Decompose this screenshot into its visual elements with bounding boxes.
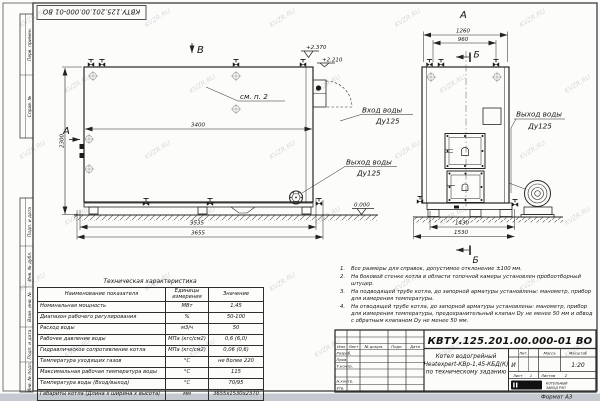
tech-table-row: Рабочее давление водыМПа (кгс/см2)0,6 (6… xyxy=(38,335,264,346)
frame-label-perv-primen: Перв. примен. xyxy=(27,28,33,61)
elevation-marks xyxy=(301,51,374,215)
view-a-letter: А xyxy=(62,126,70,137)
tech-table-row: Температура уходящих газов°Сне более 220 xyxy=(38,357,264,368)
front-outlet-label: Выход воды xyxy=(516,110,562,119)
elevation-0000: 0.000 xyxy=(354,203,370,209)
note-item: 2.На боковой стенке котла в области топо… xyxy=(337,274,594,288)
front-side-valves xyxy=(417,196,518,206)
dim-1430: 1430 xyxy=(455,221,469,227)
section-mark-bottom: Б xyxy=(456,246,479,267)
tech-table-row: Температура воды (Вход/выход)°С70/95 xyxy=(38,379,264,390)
row-utv: Утв. xyxy=(337,386,345,391)
note-item: 4.На отводящей трубе котла, до запорной … xyxy=(337,304,594,325)
row-nkontr: Н.контр. xyxy=(337,379,354,384)
tech-table-body: Номинальная мощностьМВт1,45Диапазон рабо… xyxy=(38,302,264,401)
row-razrab: Разраб. xyxy=(337,351,352,356)
callout-see-note-2: см. п. 2 xyxy=(240,92,268,101)
format-note: Формат А3 xyxy=(541,395,573,401)
front-ground-hatch xyxy=(413,218,563,223)
company-name-line2: ЗАВОД РЭП xyxy=(546,386,566,390)
outlet-leader xyxy=(302,167,397,194)
dim-1260: 1260 xyxy=(456,29,470,35)
lug-symbols xyxy=(84,71,241,174)
col-list: Лист xyxy=(348,344,359,349)
tech-col-name: Наименование показателя xyxy=(38,288,166,302)
dim-960: 960 xyxy=(458,37,469,43)
tech-col-units: Единицы измерения xyxy=(166,288,209,302)
base-anchor xyxy=(454,206,459,209)
scale-value: 1:20 xyxy=(571,362,585,369)
lit-label: Лит. xyxy=(518,351,528,356)
title-block: КВТУ.125.201.00.000-01 ВО Изм Лист № док… xyxy=(335,330,596,392)
col-data: Дата xyxy=(409,344,421,349)
row-tkontr: Т.контр. xyxy=(337,364,353,369)
sheet-value: 1 xyxy=(530,373,532,378)
sheets-value: 2 xyxy=(565,373,568,378)
row-prov: Пров. xyxy=(337,357,348,362)
side-view-dimensions xyxy=(62,67,323,240)
drawing-sheet: KVZR.RUKVZR.RUKVZR.RUKVZR.RUKVZR.RUKVZR.… xyxy=(0,0,600,400)
doc-name-line2: Heatexpert-КВр-1,45-КБД(К) xyxy=(424,362,509,368)
tech-table-row: Гидравлическое сопротивление котлаМПа (к… xyxy=(38,346,264,357)
elevation-2210: +2.210 xyxy=(322,58,343,64)
frame-label-inv-dubl: Инв. № дубл. xyxy=(27,251,33,281)
tech-characteristics: Техническая характеристика Наименование … xyxy=(37,277,263,401)
tech-table: Наименование показателя Единицы измерени… xyxy=(37,287,264,401)
company-name-line1: КОТЕЛЬНЫЙ xyxy=(546,381,568,386)
tech-table-title: Техническая характеристика xyxy=(37,277,263,287)
top-stamp-designation: КВТУ.125.201.00.000-01 ВО xyxy=(42,8,140,16)
tech-table-row: Габариты котла (Длина х ширина х высота)… xyxy=(38,390,264,401)
front-lug-symbols xyxy=(426,72,502,82)
section-mark-top: Б xyxy=(456,51,480,63)
dim-3655: 3655 xyxy=(191,231,205,237)
view-b-letter: В xyxy=(197,45,204,56)
doc-designation: КВТУ.125.201.00.000-01 ВО xyxy=(428,336,593,347)
dim-3535: 3535 xyxy=(190,221,204,227)
front-view-title: А xyxy=(459,10,467,21)
doc-name-line1: Котел водогрейный xyxy=(436,354,497,360)
notes-list: 1.Все размеры для справок, допустимое от… xyxy=(337,266,594,326)
side-view: 2300 3400 3535 3655 +2.370 +2.210 0.000 … xyxy=(60,43,414,240)
frame-label-vzam-inv: Взам. инв. № xyxy=(27,292,33,322)
tech-table-row: Максимальная рабочая температура воды°С1… xyxy=(38,368,264,379)
col-doc: № докум. xyxy=(364,344,384,349)
front-view-dimensions xyxy=(414,32,515,240)
sheets-label: Листов xyxy=(540,373,556,378)
frame-label-sprav-no: Справ. № xyxy=(27,95,33,117)
elevation-2370: +2.370 xyxy=(306,45,327,51)
side-wall-stub xyxy=(80,153,85,158)
sheet-label: Лист xyxy=(512,373,523,378)
side-wall-stub xyxy=(80,144,85,149)
dim-3400: 3400 xyxy=(191,123,205,129)
frame-label-podp-data-2: Подп. и дата xyxy=(27,329,33,359)
svg-text:Б: Б xyxy=(473,256,479,266)
inlet-label: Вход воды xyxy=(362,106,402,115)
outlet-size-label: Ду125 xyxy=(356,169,381,178)
ground-hatch xyxy=(74,216,378,221)
tech-table-row: Диапазон рабочего регулирования%50-100 xyxy=(38,313,264,324)
note-item: 1.Все размеры для справок, допустимое от… xyxy=(337,266,594,273)
tech-col-value: Значение xyxy=(209,288,264,302)
company-logo: KVZR xyxy=(511,381,542,391)
svg-text:KVZR: KVZR xyxy=(519,382,541,390)
front-view: А xyxy=(413,10,565,266)
frame-label-podp-data-1: Подп. и дата xyxy=(27,207,33,237)
front-top-valves xyxy=(426,59,499,66)
scale-label: Масштаб xyxy=(569,351,588,356)
dim-1530: 1530 xyxy=(454,230,468,236)
front-outlet-size-label: Ду125 xyxy=(527,122,552,131)
tech-table-row: Номинальная мощностьМВт1,45 xyxy=(38,302,264,313)
top-valves xyxy=(88,59,306,66)
inlet-size-label: Ду125 xyxy=(375,117,400,126)
svg-text:Б: Б xyxy=(474,51,480,61)
doc-name-line3: по техническому заданию xyxy=(426,370,507,376)
note-item: 3.На подводящей трубе котла, до запорной… xyxy=(337,289,594,303)
col-izm: Изм xyxy=(337,344,345,349)
col-podp: Подп. xyxy=(391,344,403,349)
frame-label-inv-podl: Инв. № подл. xyxy=(27,362,33,392)
lit-value: И xyxy=(511,362,516,369)
tech-table-row: Расход водым3/ч50 xyxy=(38,324,264,335)
mass-label: Масса xyxy=(543,351,556,356)
outlet-label: Выход воды xyxy=(346,158,392,167)
flue-fitting xyxy=(316,85,321,90)
